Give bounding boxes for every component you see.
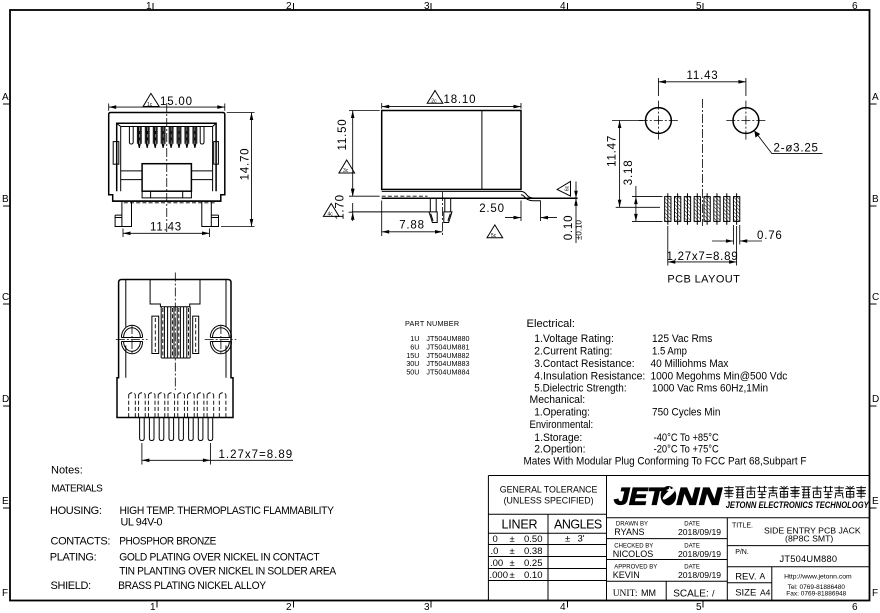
svg-text:18.10: 18.10 xyxy=(444,94,477,106)
svg-text:3c: 3c xyxy=(343,168,349,174)
svg-text:Electrical:: Electrical: xyxy=(527,318,576,330)
svg-text:0.76: 0.76 xyxy=(757,230,783,242)
svg-text:0.10: 0.10 xyxy=(524,570,543,581)
svg-text:Fax: 0769-81886948: Fax: 0769-81886948 xyxy=(786,590,846,597)
svg-text:5: 5 xyxy=(696,1,702,12)
svg-text:UL 94V-0: UL 94V-0 xyxy=(121,516,163,528)
svg-text:0.10: 0.10 xyxy=(563,215,575,241)
svg-text:±: ± xyxy=(565,534,570,545)
svg-text:A: A xyxy=(760,571,766,581)
svg-text:F: F xyxy=(872,588,878,599)
svg-text:D: D xyxy=(2,394,9,405)
svg-text:11.43: 11.43 xyxy=(150,222,182,234)
svg-text:LINER: LINER xyxy=(501,518,537,532)
svg-text:SHIELD:: SHIELD: xyxy=(51,580,92,592)
svg-text:(UNLESS SPECIFIED): (UNLESS SPECIFIED) xyxy=(504,496,594,506)
svg-text:40 Milliohms Max: 40 Milliohms Max xyxy=(651,358,729,370)
svg-text:6: 6 xyxy=(852,602,858,613)
svg-text:CONTACTS:: CONTACTS: xyxy=(51,536,111,548)
svg-text:125 Vac Rms: 125 Vac Rms xyxy=(652,333,713,345)
svg-text:JT504UM880: JT504UM880 xyxy=(779,554,837,564)
svg-text:.0: .0 xyxy=(491,546,499,557)
svg-text:A4: A4 xyxy=(760,587,771,597)
svg-text:Mates With Modular Plug Confor: Mates With Modular Plug Conforming To FC… xyxy=(524,456,807,468)
svg-text:3.Contact Resistance:: 3.Contact Resistance: xyxy=(534,358,634,370)
svg-text:ANGLES: ANGLES xyxy=(554,518,602,532)
svg-text:4: 4 xyxy=(560,1,566,12)
svg-text:7.88: 7.88 xyxy=(399,220,425,232)
svg-text:±: ± xyxy=(510,558,515,569)
svg-text:KEVIN: KEVIN xyxy=(613,570,640,580)
svg-text:Notes:: Notes: xyxy=(51,464,83,476)
svg-text:F: F xyxy=(2,588,8,599)
svg-text:0: 0 xyxy=(493,534,498,545)
svg-text:1c: 1c xyxy=(147,102,153,108)
svg-text:2.Current Rating:: 2.Current Rating: xyxy=(534,346,612,358)
svg-text:2.50: 2.50 xyxy=(479,203,505,215)
svg-text:BRASS PLATING NICKEL ALLOY: BRASS PLATING NICKEL ALLOY xyxy=(118,580,267,592)
svg-text:1000 Megohms Min@500 Vdc: 1000 Megohms Min@500 Vdc xyxy=(651,370,788,382)
svg-text:E: E xyxy=(872,496,879,507)
svg-text:C: C xyxy=(872,292,879,303)
svg-text:PCB LAYOUT: PCB LAYOUT xyxy=(667,274,740,286)
svg-text:2018/09/19: 2018/09/19 xyxy=(678,549,721,559)
svg-text:4c: 4c xyxy=(328,212,334,218)
svg-text:1.Operating:: 1.Operating: xyxy=(534,406,590,418)
svg-text:.000: .000 xyxy=(490,570,509,581)
svg-text:4.Insulation Resistance:: 4.Insulation Resistance: xyxy=(534,370,645,382)
svg-text:50U: 50U xyxy=(406,368,419,377)
svg-text:PLATING:: PLATING: xyxy=(50,552,97,564)
svg-text:3': 3' xyxy=(578,534,585,545)
svg-text:2-ø3.25: 2-ø3.25 xyxy=(774,142,819,154)
svg-text:Http://www.jetonn.com: Http://www.jetonn.com xyxy=(784,574,852,581)
svg-text:1.Voltage Rating:: 1.Voltage Rating: xyxy=(534,333,614,345)
svg-text:14.70: 14.70 xyxy=(240,148,252,181)
svg-text:C: C xyxy=(2,292,9,303)
svg-text:11.43: 11.43 xyxy=(687,70,719,82)
svg-text:±: ± xyxy=(510,534,515,545)
svg-text:UNIT:: UNIT: xyxy=(613,589,638,599)
svg-text:(8P8C SMT): (8P8C SMT) xyxy=(785,534,833,544)
svg-text:750 Cycles Min: 750 Cycles Min xyxy=(652,406,720,418)
svg-text:JT504UM884: JT504UM884 xyxy=(426,368,469,377)
svg-text:RYANS: RYANS xyxy=(614,527,644,537)
svg-text:A: A xyxy=(2,92,9,103)
svg-text:NICOLOS: NICOLOS xyxy=(613,549,654,559)
svg-text:0.50: 0.50 xyxy=(524,534,543,545)
svg-text:3: 3 xyxy=(424,602,430,613)
svg-text:11.47: 11.47 xyxy=(607,135,619,167)
svg-text:MATERIALS: MATERIALS xyxy=(51,483,103,494)
svg-text:±0.10: ±0.10 xyxy=(575,219,584,240)
svg-text:JETONN ELECTRONICS TECHNOLOGY: JETONN ELECTRONICS TECHNOLOGY xyxy=(726,500,870,511)
svg-text:PART NUMBER: PART NUMBER xyxy=(405,319,459,328)
svg-text:2: 2 xyxy=(286,602,292,613)
svg-text:0.25: 0.25 xyxy=(524,558,543,569)
svg-text:1.27x7=8.89: 1.27x7=8.89 xyxy=(667,251,739,263)
svg-text:B: B xyxy=(2,194,9,205)
svg-text:JET: JET xyxy=(614,484,666,511)
svg-text:HIGH TEMP. THERMOPLASTIC FLAMM: HIGH TEMP. THERMOPLASTIC FLAMMABILITY xyxy=(120,505,335,517)
svg-text:SIZE: SIZE xyxy=(735,587,756,598)
svg-text:3: 3 xyxy=(424,1,430,12)
svg-text:1: 1 xyxy=(146,1,152,12)
svg-text:4: 4 xyxy=(560,602,566,613)
svg-text:E: E xyxy=(2,496,9,507)
svg-text:MM: MM xyxy=(641,588,656,598)
svg-text:1000 Vac Rms 60Hz,1Min: 1000 Vac Rms 60Hz,1Min xyxy=(652,383,768,395)
svg-text:6: 6 xyxy=(852,1,858,12)
svg-text:1.Storage:: 1.Storage: xyxy=(534,432,582,444)
svg-text:2c: 2c xyxy=(431,99,437,105)
svg-text:±: ± xyxy=(510,546,515,557)
svg-text:2018/09/19: 2018/09/19 xyxy=(678,570,721,580)
svg-text:A: A xyxy=(872,92,879,103)
svg-text:-40°C To +85°C: -40°C To +85°C xyxy=(654,432,719,444)
svg-text:HOUSING:: HOUSING: xyxy=(50,505,102,517)
svg-text:1.27x7=8.89: 1.27x7=8.89 xyxy=(219,449,294,461)
svg-text:GOLD PLATING OVER NICKEL IN CO: GOLD PLATING OVER NICKEL IN CONTACT xyxy=(119,552,320,564)
svg-text:NN: NN xyxy=(677,484,724,511)
svg-text:PHOSPHOR BRONZE: PHOSPHOR BRONZE xyxy=(119,536,216,548)
svg-text:D: D xyxy=(872,394,879,405)
svg-text:±: ± xyxy=(510,570,515,581)
svg-text:REV.: REV. xyxy=(735,571,756,582)
svg-text:-20°C To +75°C: -20°C To +75°C xyxy=(654,443,719,455)
svg-text:Mechanical:: Mechanical: xyxy=(530,394,586,406)
svg-text:2018/09/19: 2018/09/19 xyxy=(678,527,721,537)
svg-text:P/N.: P/N. xyxy=(735,549,749,556)
svg-text:0.38: 0.38 xyxy=(524,546,543,557)
svg-text:1: 1 xyxy=(150,602,156,613)
svg-text:5: 5 xyxy=(696,602,702,613)
svg-text:15.00: 15.00 xyxy=(160,96,193,108)
svg-text:2: 2 xyxy=(286,1,292,12)
svg-text:5c: 5c xyxy=(491,233,497,239)
svg-text:SCALE:: SCALE: xyxy=(673,589,709,600)
svg-text:TIN PLANTING OVER NICKEL IN SO: TIN PLANTING OVER NICKEL IN SOLDER AREA xyxy=(119,566,337,578)
svg-text:2.Opertion:: 2.Opertion: xyxy=(534,443,585,455)
svg-text:1.5 Amp: 1.5 Amp xyxy=(652,346,687,358)
svg-text:B: B xyxy=(872,194,879,205)
svg-text:.00: .00 xyxy=(490,558,503,569)
svg-text:GENERAL TOLERANCE: GENERAL TOLERANCE xyxy=(500,485,598,495)
svg-text:3.18: 3.18 xyxy=(623,160,635,186)
svg-text:Environmental:: Environmental: xyxy=(530,419,594,431)
svg-text:11.50: 11.50 xyxy=(337,119,349,151)
svg-text:TITLE.: TITLE. xyxy=(732,522,753,529)
svg-text:6c: 6c xyxy=(565,185,571,191)
